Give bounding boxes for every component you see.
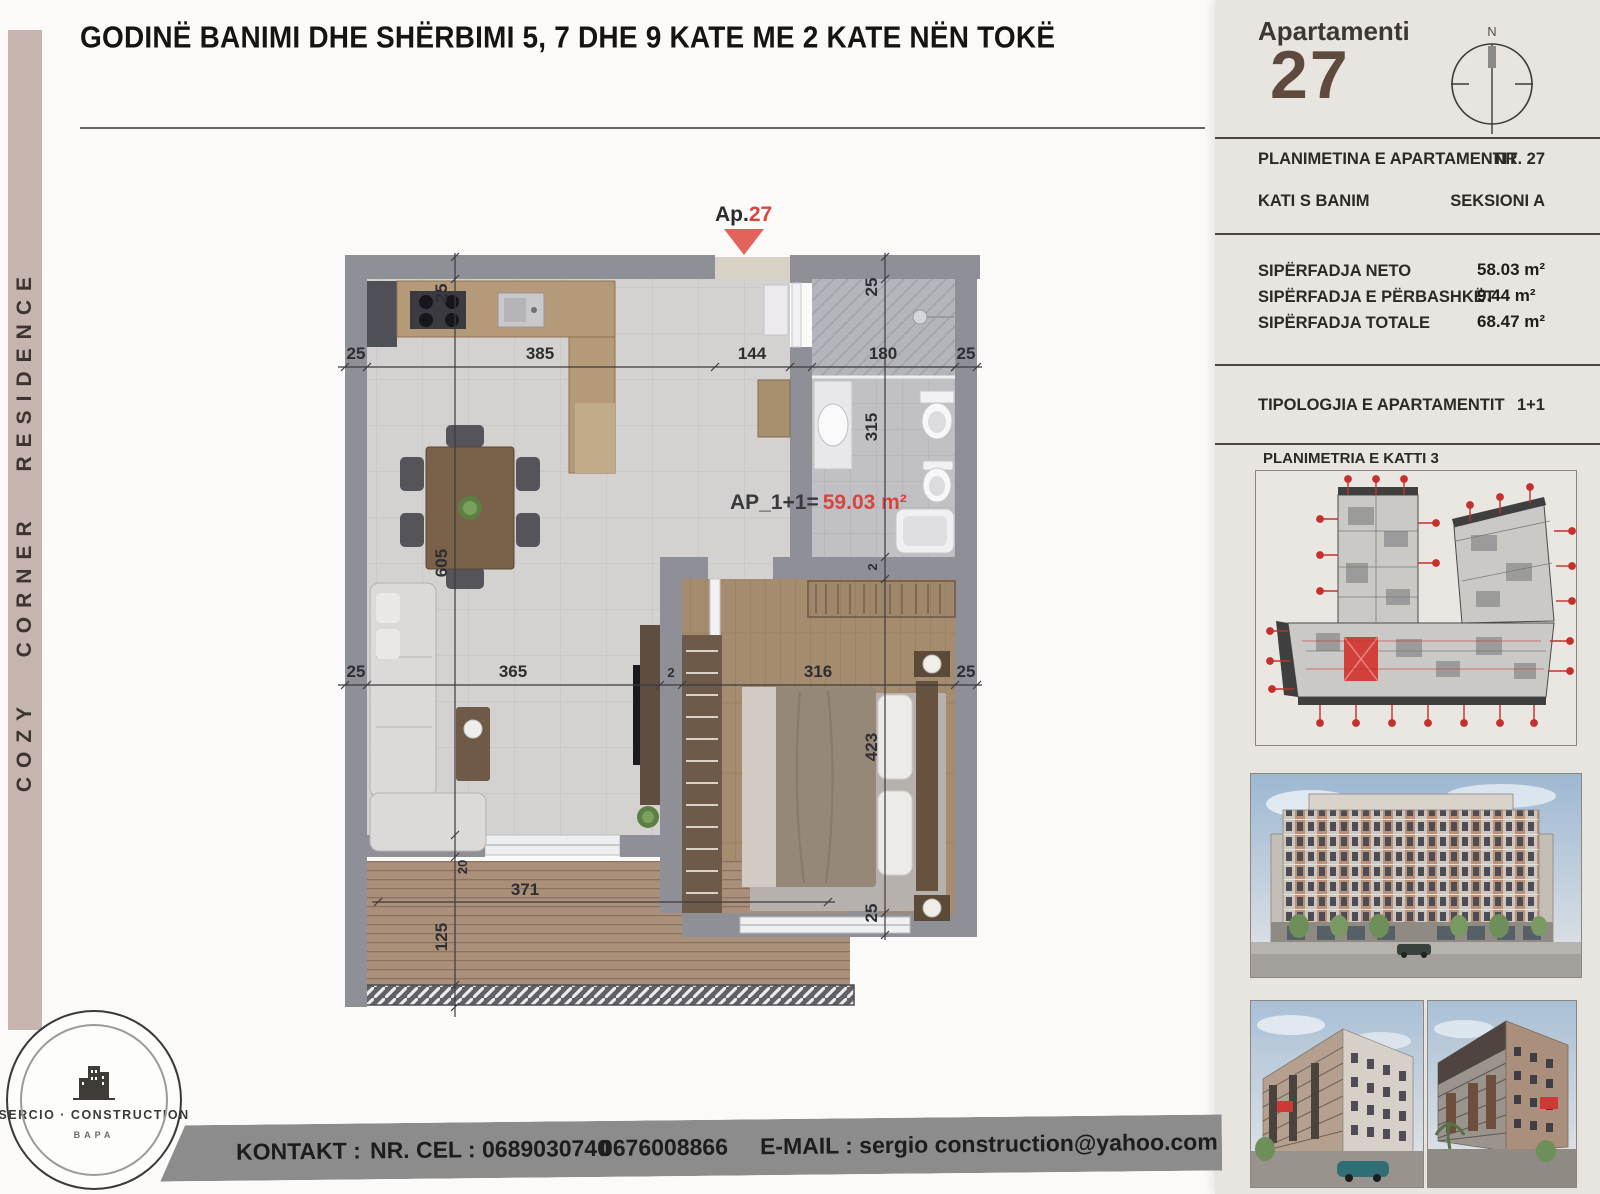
area-total-value: 68.47 m² [1477,312,1545,332]
render-right [1428,1001,1576,1187]
panel-divider [1215,233,1600,235]
red-banner [1277,1101,1293,1112]
tv [633,665,640,765]
bedroom-door [710,579,720,637]
floor-row-label: KATI S BANIM [1258,192,1370,211]
svg-text:2: 2 [865,563,880,570]
area-common-label: SIPËRFADJA E PËRBASHKËT [1258,288,1495,307]
contact-email: E-MAIL : sergio construction@yahoo.com [760,1128,1218,1160]
compass-icon: N [1437,22,1547,138]
typology-value: 1+1 [1517,396,1545,415]
area-common-value: 9.44 m² [1477,286,1536,306]
render-left [1251,1001,1423,1187]
area-label: AP_1+1=59.03 m² [730,491,907,514]
keyplan-title: PLANIMETRIA E KATTI 3 [1263,450,1439,467]
red-banner [1540,1097,1558,1109]
floor-row-value: SEKSIONI A [1450,192,1545,211]
fridge [367,281,397,347]
side-banner-text: COZY CORNER RESIDENCE [13,268,37,792]
info-panel: Apartamenti 27 N PLANIMETINA E APARTAMEN… [1215,0,1600,1194]
svg-text:144: 144 [738,344,767,363]
elevation-box [1250,773,1582,978]
hall-cabinet [758,380,790,437]
contact-phone: NR. CEL : 0689030740 [370,1135,610,1165]
side-banner: COZY CORNER RESIDENCE [8,30,42,1030]
svg-text:423: 423 [862,733,881,761]
svg-text:315: 315 [862,413,881,441]
area-neto-value: 58.03 m² [1477,260,1545,280]
typology-label: TIPOLOGJIA E APARTAMENTIT [1258,396,1505,415]
shower-head-icon [913,310,927,324]
area-neto-label: SIPËRFADJA NETO [1258,262,1411,281]
svg-text:180: 180 [869,344,897,363]
floor-plan-figure: Ap.27 AP_1+1=59.03 m² 25 385 144 180 25 … [330,195,990,1025]
panel-divider [1215,443,1600,445]
apartment-number: 27 [1270,36,1350,114]
svg-text:2: 2 [667,665,674,680]
toilet [920,391,954,439]
brochure-page: COZY CORNER RESIDENCE GODINË BANIMI DHE … [0,0,1600,1194]
plan-row-label: PLANIMETINA E APARTAMENTIT [1258,150,1517,169]
render-left-box [1250,1000,1424,1188]
svg-text:25: 25 [432,284,451,303]
svg-text:371: 371 [511,880,539,899]
contact-phone2: 0676008866 [600,1134,728,1162]
tv-unit [640,625,660,805]
open-wardrobe [808,581,955,617]
coffee-table [456,707,490,781]
render-right-box [1427,1000,1577,1188]
company-logo: SERCIO · CONSTRUCTION BAPA [6,1010,182,1190]
bathroom-door [792,283,801,347]
svg-text:25: 25 [347,662,366,681]
svg-text:25: 25 [957,662,976,681]
svg-text:605: 605 [432,549,451,577]
balcony-railing [360,985,854,1005]
entry-closet [764,285,788,335]
wash-basin [818,404,848,446]
svg-text:316: 316 [804,662,832,681]
svg-text:125: 125 [432,923,451,951]
svg-text:385: 385 [526,344,554,363]
logo-inner-ring [20,1024,168,1176]
plan-row-value: NR. 27 [1494,150,1545,169]
floor-plan: Ap.27 AP_1+1=59.03 m² 25 385 144 180 25 … [330,195,990,1025]
contact-label: KONTAKT : [236,1137,361,1165]
svg-text:25: 25 [862,904,881,923]
svg-text:25: 25 [347,344,366,363]
unit-marker: Ap.27 [715,203,772,226]
panel-divider [1215,137,1600,139]
elevation-render [1251,774,1581,977]
unit-marker-arrow-icon [724,229,764,255]
svg-text:N: N [1487,24,1496,39]
keyplan-box [1255,470,1577,746]
panel-divider [1215,364,1600,366]
svg-text:365: 365 [499,662,527,681]
svg-text:25: 25 [957,344,976,363]
svg-text:20: 20 [455,860,470,874]
header-divider [80,127,1205,129]
keyplan-figure [1256,471,1576,745]
area-total-label: SIPËRFADJA TOTALE [1258,314,1430,333]
page-title: GODINË BANIMI DHE SHËRBIMI 5, 7 DHE 9 KA… [80,20,1055,55]
svg-text:25: 25 [862,278,881,297]
contact-bar: KONTAKT : NR. CEL : 0689030740 067600886… [160,1114,1223,1181]
